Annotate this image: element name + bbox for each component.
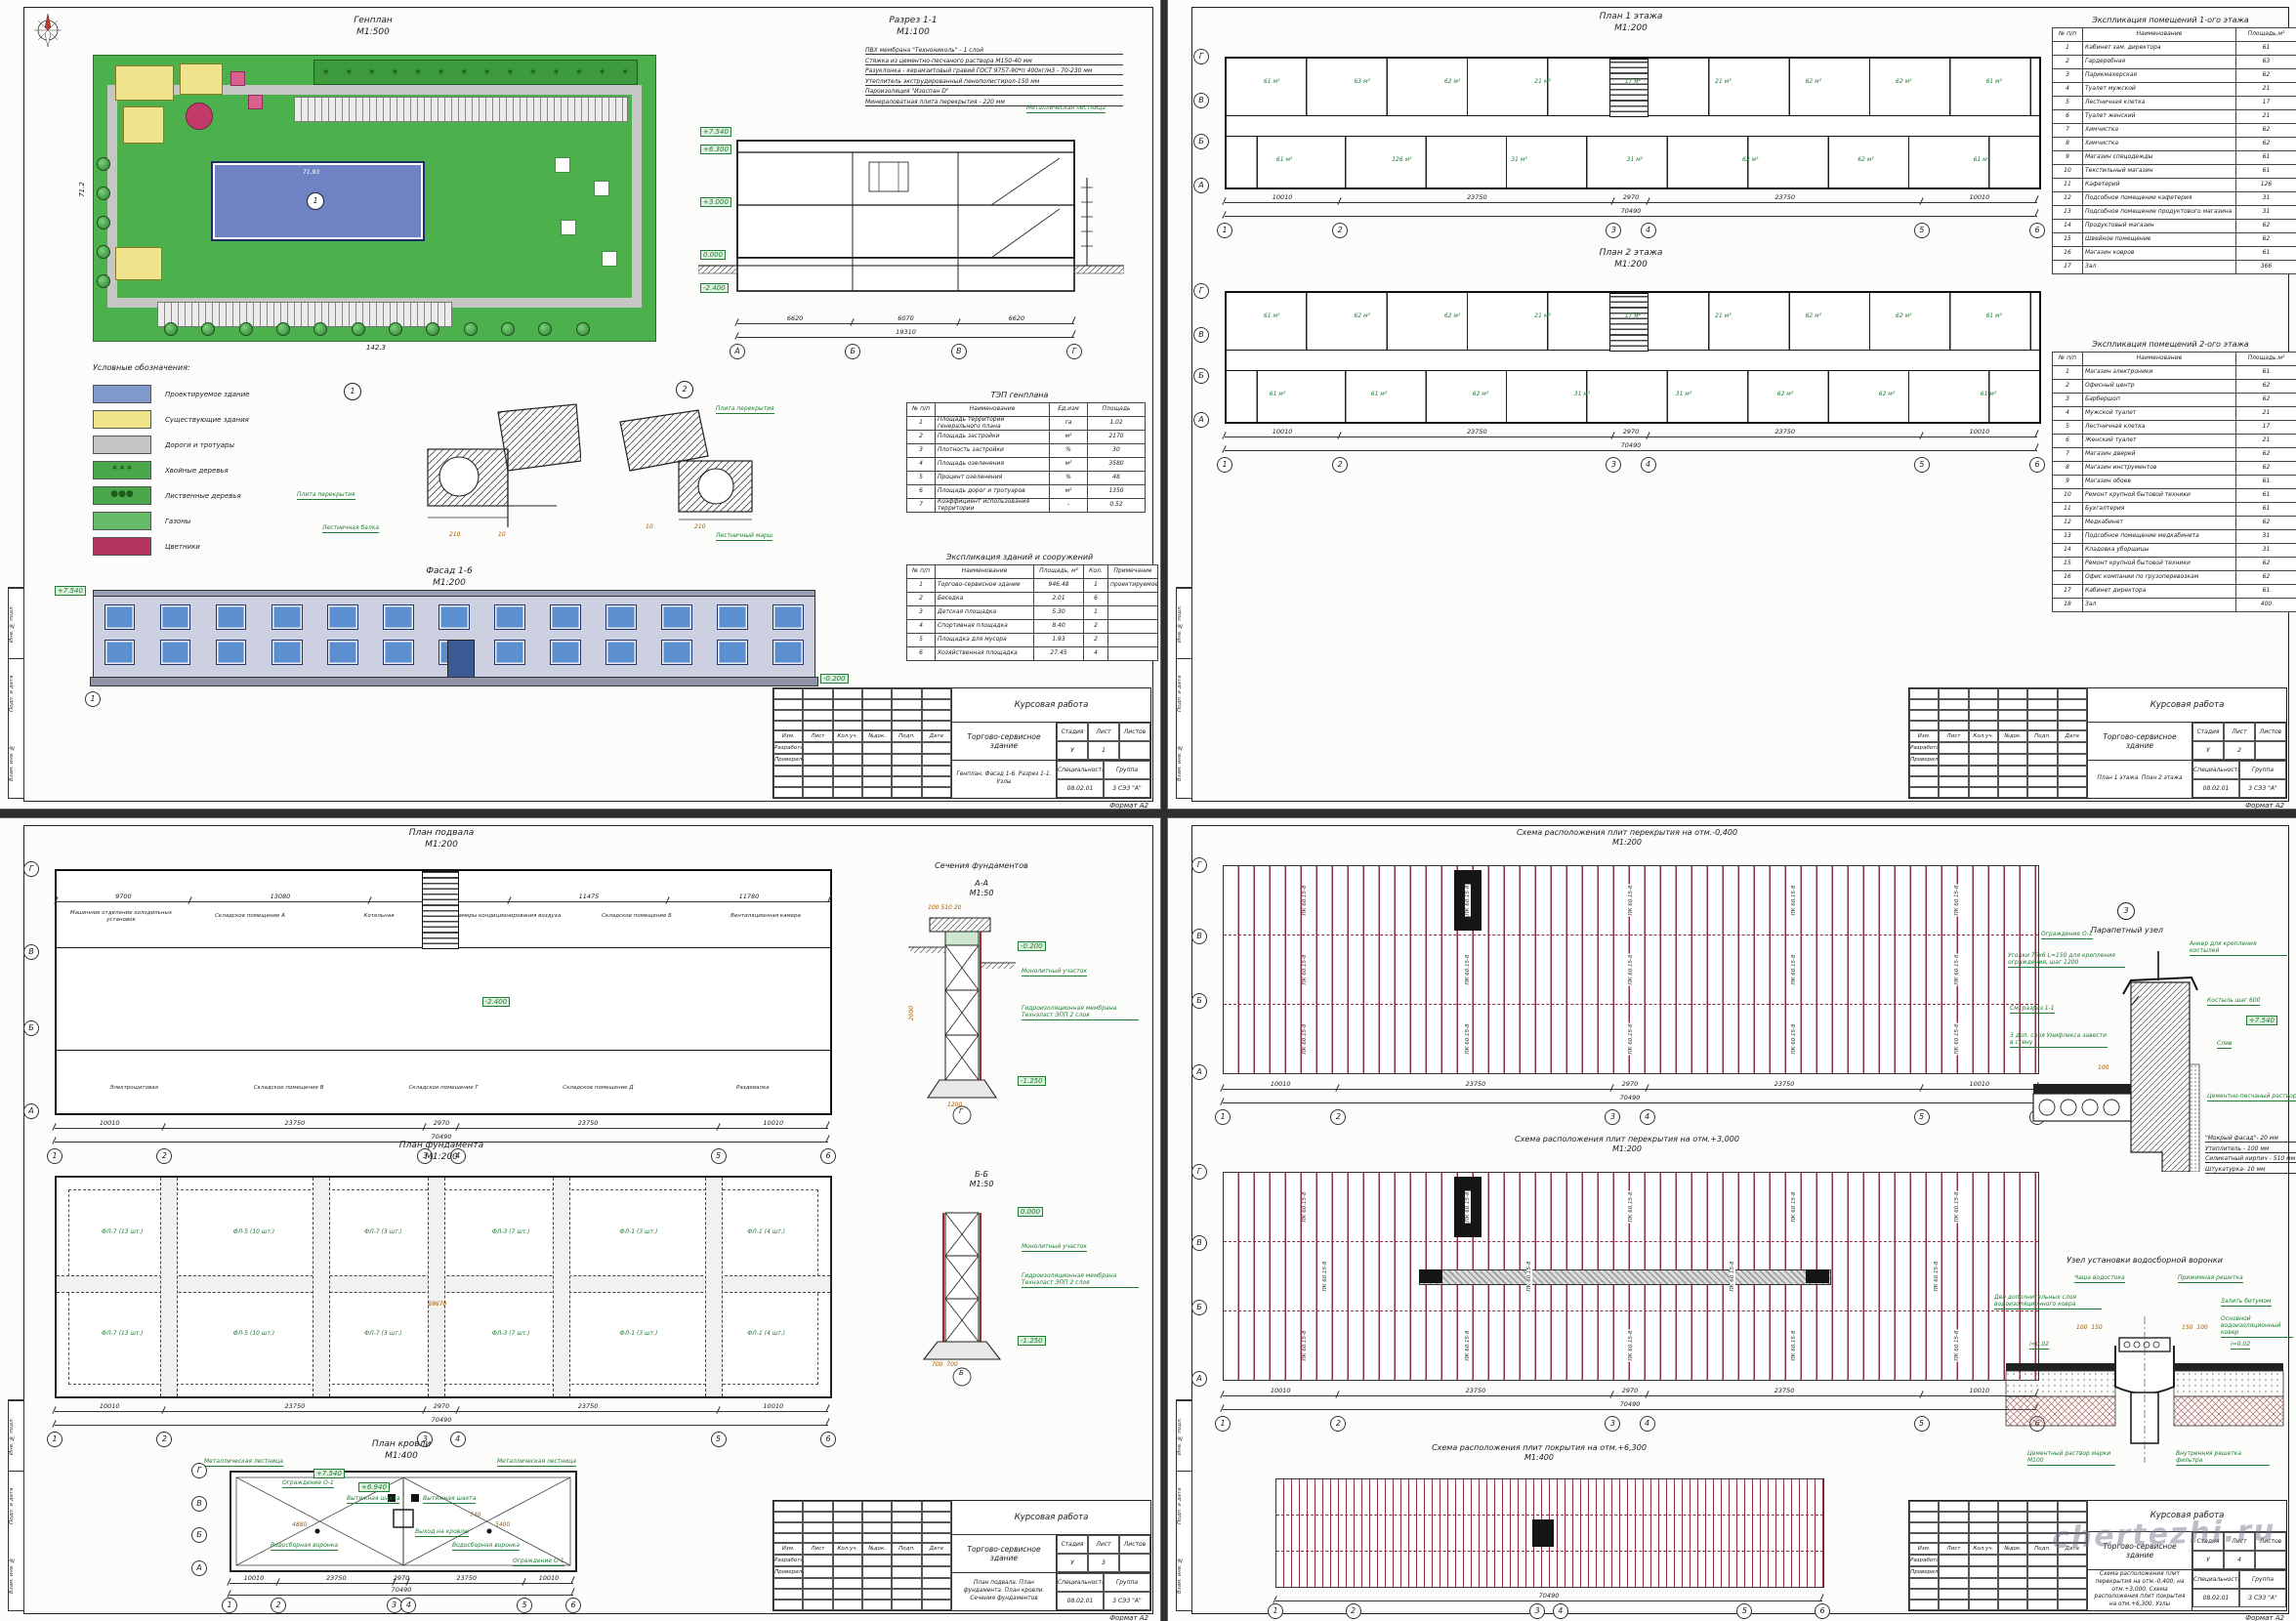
table-cell: Женский туалет (2083, 435, 2236, 448)
playground (230, 71, 245, 86)
table-cell: Хозяйственная площадка (936, 647, 1034, 661)
table-cell: Лестничная клетка (2083, 421, 2236, 435)
dim-value: 6620 (787, 314, 804, 322)
tree-icon: ✶ (621, 67, 629, 78)
axis-bubble: 5 (1914, 1109, 1930, 1125)
scheme3-title: Схема расположения плит покрытия на отм.… (1432, 1443, 1647, 1464)
roof-title: План кровлиМ1:400 (372, 1439, 431, 1462)
dim-segment: 2970 (1612, 1080, 1647, 1090)
table-row: 6Площадь дорог и тротуаровм²1350 (907, 485, 1146, 499)
floor-plan-1: 61 м²63 м²62 м²21 м²17 м²21 м²62 м²62 м²… (1225, 57, 2041, 189)
object-name: Торгово-сервисное здание (2088, 1532, 2192, 1569)
spec-cell: 3 СЭЗ "А" (2239, 1589, 2286, 1607)
axis-bubble: А (23, 1103, 39, 1119)
tree-icon: ✶ (483, 67, 491, 78)
axis-bubble: Б (191, 1527, 207, 1543)
stage-cell: Лист (1088, 1535, 1119, 1554)
tree-icon: ✶ (598, 67, 605, 78)
area-labels-bottom: 61 м²61 м²62 м²31 м²31 м²62 м²62 м²61 м² (1227, 391, 2039, 397)
axis-bubble: 1 (85, 691, 101, 707)
column-header: Площадь,м² (2236, 353, 2296, 366)
plan2-dims: 100102375029702375010010 (1225, 428, 2037, 439)
table-cell: 16 (2053, 247, 2083, 261)
table-cell: Текстильный магазин (2083, 165, 2236, 179)
area-label: ФЛ-1 (4 шт.) (747, 1228, 785, 1235)
room-name-label: Камеры кондиционирования воздуха (443, 913, 572, 920)
tree-icon (97, 187, 110, 200)
facade-drawing (93, 590, 815, 682)
format-label: Формат А2 (1109, 802, 1148, 810)
table-cell: 62 (2236, 517, 2296, 530)
parking-strip (294, 97, 628, 122)
table-cell: 61 (2236, 42, 2296, 56)
table-row: 3Барбершоп62 (2053, 394, 2296, 407)
note-line: "Мокрый фасад"- 20 мм (2205, 1135, 2296, 1143)
area-label: 62 м² (1896, 78, 1911, 85)
table-cell: Плотность застройки (936, 444, 1050, 458)
dim-210: 210 (449, 531, 460, 538)
room-name-label: Складское помещение В (211, 1085, 365, 1092)
area-label: ФЛ-1 (3 шт.) (619, 1330, 657, 1337)
table-row: 6Женский туалет21 (2053, 435, 2296, 448)
side-stamp-cell: Инв. № подл. (1177, 1400, 1191, 1471)
side-stamp-cell: Взам. инв. № (9, 1541, 23, 1610)
table-cell: 6 (2053, 110, 2083, 124)
axis-bubble: А (1191, 1064, 1207, 1080)
spec-grid: СпециальностьГруппа08.02.013 СЭЗ "А" (2192, 761, 2286, 798)
axis-bubble: В (1193, 93, 1209, 108)
plan1-dims: 100102375029702375010010 (1225, 193, 2037, 205)
dims-top: 100 510 20 (928, 904, 961, 911)
legend-item-label: Существующие здания (165, 416, 249, 424)
table-cell: Офисный центр (2083, 380, 2236, 394)
area-label: ФЛ-5 (10 шт.) (232, 1228, 274, 1235)
table-cell: Торгово-сервисное здание (936, 579, 1034, 593)
table-cell: 62 (2236, 138, 2296, 151)
table-cell: 17 (2236, 421, 2296, 435)
legend-item: ✶✶✶Хвойные деревья (93, 461, 317, 479)
table-cell: Химчистка (2083, 138, 2236, 151)
axis-bubble: А (1193, 412, 1209, 428)
table-cell: - (1050, 499, 1088, 513)
fence-label: Ограждение О-1 (513, 1559, 564, 1566)
side-stamp-cell: Подп. и дата (9, 658, 23, 728)
room-name-label: Раздевалка (676, 1085, 830, 1092)
table-cell (1108, 620, 1158, 634)
detail-2-drawing: Плита перекрытия Лестничный марш 210 10 (610, 402, 781, 549)
table-cell: 1.93 (1034, 634, 1084, 647)
table-cell: 4 (907, 620, 936, 634)
table-cell: 5 (2053, 421, 2083, 435)
uniflex-label: 3 доп. слоя Унифлекса завести в стену (2010, 1033, 2108, 1048)
window (216, 640, 246, 665)
legend-swatch-conifer-icon: ✶✶✶ (93, 461, 151, 479)
stage-grid: СтадияЛистЛистовУ4 (2192, 1532, 2286, 1569)
data-table: № п/пНаименованиеЕд.измПлощадь1Площадь т… (906, 402, 1146, 513)
wall-layers-notes: "Мокрый фасад"- 20 ммУтеплитель - 100 мм… (2205, 1135, 2296, 1176)
table-cell: 3580 (1088, 458, 1146, 472)
table-cell: Беседка (936, 593, 1034, 606)
table-cell (1108, 593, 1158, 606)
table-cell: 13 (2053, 206, 2083, 220)
stage-grid: СтадияЛистЛистовУ2 (2192, 723, 2286, 760)
table-cell: 1 (907, 417, 936, 431)
slab-band: ПК8.12-8 ПК 60.15-8ПК 60.15-8ПК 60.15-8П… (1224, 1173, 2038, 1242)
spec-cell: 08.02.01 (1057, 1592, 1104, 1610)
dim-segment: 23750 (164, 1119, 425, 1129)
table-cell: Химчистка (2083, 124, 2236, 138)
table-cell: 21 (2236, 435, 2296, 448)
spec-cell: Специальность (2192, 761, 2239, 779)
sheet-3: Инв. № подл.Подп. и датаВзам. инв. № Пла… (0, 818, 1160, 1621)
detail-2-badge: 2 (676, 381, 693, 398)
scheme1-title: Схема расположения плит перекрытия на от… (1517, 828, 1737, 849)
table-row: 10Ремонт крупной бытовой техники61 (2053, 489, 2296, 503)
plate-label: ПК 60.15-8 (1465, 953, 1471, 985)
funnel-label: Водосборная воронка (452, 1543, 520, 1551)
tree-icon (464, 322, 478, 336)
facade-parapet (94, 591, 814, 597)
table-row: 13Подсобное помещение медкабинета31 (2053, 530, 2296, 544)
facade-window-row (104, 604, 804, 628)
opening (1806, 1269, 1829, 1283)
object-name: Торгово-сервисное здание (952, 723, 1057, 760)
stage-cell (2255, 741, 2286, 760)
table-cell: 2 (907, 593, 936, 606)
parapet-title: Парапетный узел (2091, 926, 2163, 935)
stage-cell: Лист (2224, 1532, 2255, 1551)
table-cell: 62 (2236, 380, 2296, 394)
table-cell: 1 (907, 579, 936, 593)
tree-icon (389, 322, 402, 336)
table-cell: 9 (2053, 476, 2083, 489)
legend-swatch-road-icon (93, 436, 151, 454)
section-b-title: Б-БМ1:50 (970, 1170, 994, 1190)
side-stamp: Инв. № подл.Подп. и датаВзам. инв. № (1176, 1399, 1192, 1611)
window (104, 604, 135, 630)
table-cell: 1350 (1088, 485, 1146, 499)
stage-cell: У (1057, 1554, 1088, 1572)
table-row: 4Площадь озеленениям²3580 (907, 458, 1146, 472)
rooms-explication-1-wrap: Экспликация помещений 1-ого этажа № п/пН… (2052, 16, 2289, 274)
dim-segment: 23750 (1648, 1080, 1922, 1090)
parapet-elev: +7.540 (2246, 1016, 2277, 1025)
axis-bubble: 5 (1736, 1603, 1752, 1619)
plate-label: ПК 60.15-8 (1954, 884, 1960, 916)
genplan-title: ГенпланМ1:500 (354, 16, 392, 38)
axis-bubble: В (23, 944, 39, 960)
gazebo (561, 220, 576, 235)
dim-value: 23750 (285, 1402, 306, 1410)
table-row: 18Зал400 (2053, 599, 2296, 612)
staircase (422, 871, 459, 949)
axis-bubble: А (1193, 178, 1209, 193)
sections-group-title: Сечения фундаментов (935, 861, 1028, 871)
compass-rose-icon (29, 12, 66, 49)
tree-icon (239, 322, 253, 336)
basement-plan: 970013080101351147511780 Машинное отделе… (55, 869, 832, 1115)
note-line: Разуклонка - керамзитовый гравий ГОСТ 97… (865, 67, 1123, 75)
kostyl-label: Костыль шаг 600 (2207, 998, 2260, 1006)
slab-label: Плита перекрытия (716, 406, 774, 414)
existing-building (180, 63, 223, 95)
scheme3-total: 70490 (1275, 1592, 1822, 1603)
table-cell: 1 (1084, 579, 1108, 593)
table-row: 7Магазин дверей62 (2053, 448, 2296, 462)
table-row: 9Магазин спецодежды61 (2053, 151, 2296, 165)
table-cell: 31 (2236, 530, 2296, 544)
window (271, 640, 302, 665)
format-label: Формат А2 (2245, 802, 2284, 810)
scheme3-axes: 123456 (1275, 1603, 1822, 1619)
parapet-detail-badge: 3 (2117, 902, 2135, 920)
axis-bubble: 6 (820, 1148, 836, 1164)
table-row: 7Химчистка62 (2053, 124, 2296, 138)
table-cell: Площадка для мусора (936, 634, 1034, 647)
slab-band: ПК8.12-8 ПК 60.15-8ПК 60.15-8ПК 60.15-8П… (1224, 866, 2038, 935)
axis-bubble: 6 (2029, 223, 2045, 238)
table-cell: Площадь застройки (936, 431, 1050, 444)
basement-vert-axes: ГВБА (23, 869, 39, 1111)
column-header: Наименование (936, 403, 1050, 417)
dim-segment: 23750 (1649, 428, 1922, 437)
legend-swatch-flower-icon (93, 537, 151, 556)
plate-label: ПК 60.15-8 (1934, 1260, 1940, 1292)
window (104, 640, 135, 665)
tree-col (96, 149, 111, 296)
table-cell: 62 (2236, 571, 2296, 585)
axis-bubble: Б (1193, 134, 1209, 149)
table-cell: 5 (907, 634, 936, 647)
table-row: 4Спортивная площадка8.402 (907, 620, 1158, 634)
plate-label: ПК 60.15-8 (1465, 884, 1471, 916)
dim-segment: 23750 (1340, 428, 1613, 437)
scheme2-title: Схема расположения плит перекрытия на от… (1515, 1135, 1739, 1155)
window (661, 604, 691, 630)
dim-value: 10010 (1969, 1080, 1989, 1088)
slab-band (1276, 1516, 1823, 1552)
area-label: 21 м² (1715, 312, 1731, 319)
window (717, 604, 747, 630)
table-cell: 11 (2053, 503, 2083, 517)
elevation-mark: 0.000 (700, 250, 726, 260)
foundation-axes: 123456 (55, 1432, 828, 1447)
dim-segment: 10010 (1922, 193, 2037, 203)
plate-label: ПК 60.15-8 (1302, 953, 1308, 985)
anchor-label: Анкер для крепления костылей (2190, 941, 2287, 956)
table-cell: 2 (1084, 634, 1108, 647)
table-cell: Подсобное помещение кафетерия (2083, 192, 2236, 206)
table-row: 1Площадь территории генерального планага… (907, 417, 1146, 431)
axis-label: Г (959, 1107, 963, 1115)
legend-item-label: Газоны (165, 518, 190, 525)
spec-cell: Специальность (1057, 1573, 1104, 1592)
table-row: 13Подсобное помещение продуктового магаз… (2053, 206, 2296, 220)
area-label: 17 м² (1625, 312, 1641, 319)
table-row: 8Магазин инструментов62 (2053, 462, 2296, 476)
dim-value: 10010 (1969, 1387, 1989, 1394)
scheme2-vert-axes: ГВБА (1191, 1172, 1207, 1379)
section-a-title: А-АМ1:50 (970, 879, 994, 899)
table-cell: Магазин инструментов (2083, 462, 2236, 476)
table-cell (1108, 647, 1158, 661)
table-cell: 1 (1084, 606, 1108, 620)
table-header-row: № п/пНаименованиеПлощадь, м²Кол.Примечан… (907, 565, 1158, 579)
facade-elev-bottom: -0.200 (820, 674, 849, 684)
area-label: 31 м² (1574, 391, 1590, 397)
table-cell: 400 (2236, 599, 2296, 612)
table-row: 5Процент озеленения%48 (907, 472, 1146, 485)
title-block-main: Курсовая работаТоргово-сервисное зданиеС… (2088, 1501, 2286, 1610)
table-cell: м² (1050, 431, 1088, 444)
table-cell: 4 (907, 458, 936, 472)
dim-value: 10010 (763, 1402, 783, 1410)
tree-icon: ✶ (460, 67, 468, 78)
table-cell: Зал (2083, 599, 2236, 612)
stage-cell: Стадия (1057, 723, 1088, 741)
side-stamp-cell: Взам. инв. № (1177, 1541, 1191, 1610)
stage-cell: У (1057, 741, 1088, 760)
tree-icon (97, 157, 110, 171)
axis-label: Б (959, 1369, 964, 1377)
table-row: 16Магазин ковров61 (2053, 247, 2296, 261)
plate-label: ПК 60.15-8 (1954, 1022, 1960, 1055)
elevation-mark: 0.000 (1018, 1207, 1043, 1217)
beam-label: Лестничная балка (322, 525, 379, 533)
table-cell: 0.52 (1088, 499, 1146, 513)
dim-segment: 10010 (1223, 1387, 1338, 1396)
table-row: 5Лестничная клетка17 (2053, 97, 2296, 110)
axis-bubble: 3 (387, 1598, 402, 1613)
plate-label: ПК 60.15-8 (1628, 953, 1634, 985)
table-cell: 4 (2053, 83, 2083, 97)
area-label: ФЛ-5 (10 шт.) (232, 1330, 274, 1337)
legend-item: Существующие здания (93, 410, 317, 429)
spec-cell: Группа (2239, 1570, 2286, 1589)
note-line: Утеплитель экструдированный пенополистир… (865, 78, 1123, 86)
table-cell: 7 (2053, 124, 2083, 138)
dim-segment: 2970 (1613, 193, 1648, 203)
dim-value: 23750 (456, 1574, 477, 1582)
genplan-width-dim: 142.3 (347, 344, 405, 352)
dim-segment: 10010 (230, 1574, 278, 1584)
note-line: Утеплитель - 100 мм (2205, 1145, 2296, 1153)
tree-icon (201, 322, 215, 336)
dim-10: 10 (498, 531, 506, 538)
stage-cell: Листов (2255, 723, 2286, 741)
dim-value: 10010 (100, 1402, 120, 1410)
side-stamp-cell: Подп. и дата (9, 1471, 23, 1541)
axis-bubble: А (730, 344, 745, 359)
spec-cell: 08.02.01 (2192, 1589, 2239, 1607)
membrane-label: Гидроизоляционная мембрана Технэласт ЭПП… (1022, 1273, 1139, 1288)
playground (248, 95, 263, 109)
table-row: 3Детская площадка5.301 (907, 606, 1158, 620)
dim-segment: 6620 (959, 314, 1074, 324)
tree-icon: ✶ (506, 67, 514, 78)
section-1-1-drawing: +7.540 +6.300 +3.000 0.000 -2.400 Металл… (698, 119, 1124, 369)
stage-cell: У (2192, 1551, 2224, 1569)
area-label: ФЛ-7 (3 шт.) (364, 1330, 402, 1337)
dim-value: 10010 (1271, 1080, 1291, 1088)
section-axes: АБВГ (737, 344, 1074, 359)
area-label: ФЛ-7 (13 шт.) (102, 1228, 144, 1235)
axis-bubble: 1 (1268, 1603, 1283, 1619)
roof-slab-scheme-plus-6300 (1275, 1478, 1824, 1588)
dim-segment: 10010 (55, 1402, 164, 1412)
dim-value: 2970 (1623, 193, 1640, 201)
dim-value: 10010 (100, 1119, 120, 1127)
dim-value: 23750 (1774, 1080, 1795, 1088)
tree-icon: ✶ (529, 67, 537, 78)
table-row: 2Площадь застройким²2170 (907, 431, 1146, 444)
building-number-badge: 1 (307, 192, 324, 210)
table-cell: Магазин ковров (2083, 247, 2236, 261)
tep-table-title: ТЭП генплана (906, 391, 1133, 399)
dim-value: 10010 (1970, 428, 1990, 436)
table-cell: Кладовка уборщицы (2083, 544, 2236, 558)
plate-label: ПК 60.15-8 (1791, 953, 1797, 985)
stage-cell: Стадия (2192, 723, 2224, 741)
sliv-label: Слив (2217, 1041, 2232, 1049)
title-block-revision-grid: Изм.ЛистКол.уч.№док.Подп.ДатаРазработалП… (773, 1501, 952, 1610)
stage-cell: Лист (1088, 723, 1119, 741)
title-block-revision-grid: Изм.ЛистКол.уч.№док.Подп.ДатаРазработалП… (1909, 688, 2088, 798)
dim-value: 23750 (578, 1402, 599, 1410)
dim-value: 2970 (1623, 428, 1640, 436)
elevation-mark: -0.200 (1018, 941, 1046, 951)
dim-value: 23750 (285, 1119, 306, 1127)
project-name: Курсовая работа (952, 1501, 1150, 1535)
axis-bubble: 6 (1815, 1603, 1830, 1619)
table-cell: 8.40 (1034, 620, 1084, 634)
dim-value: 23750 (1466, 1080, 1486, 1088)
table-cell: 17 (2053, 585, 2083, 599)
genplan-drawing: ✶✶✶✶✶✶✶✶✶✶✶✶✶✶ 1 71,93 (93, 55, 656, 342)
table-row: 5Площадка для мусора1.932 (907, 634, 1158, 647)
dim-segment: 6620 (737, 314, 853, 324)
stage-cell: 1 (1088, 741, 1119, 760)
table-cell: 62 (2236, 394, 2296, 407)
table-cell: Площадь дорог и тротуаров (936, 485, 1050, 499)
table-cell: Офис компании по грузоперевозкам (2083, 571, 2236, 585)
stage-cell: 4 (2224, 1551, 2255, 1569)
axis-bubble: Г (1193, 283, 1209, 299)
table-row: 6Туалет женский21 (2053, 110, 2296, 124)
table-cell: 62 (2236, 558, 2296, 571)
dim-segment: 10010 (55, 1119, 164, 1129)
table-cell: Зал (2083, 261, 2236, 274)
area-label: 31 м² (1627, 156, 1643, 163)
window (383, 604, 413, 630)
axis-bubble: 3 (1605, 1416, 1620, 1432)
foundation-total: 70490 (55, 1416, 828, 1428)
gazebo (602, 251, 617, 267)
roof-vert-axes: ГВБА (191, 1471, 207, 1568)
table-row: 7Коэффициент использования территории-0.… (907, 499, 1146, 513)
dim-value: 2970 (1622, 1387, 1639, 1394)
dim-value: 23750 (578, 1119, 599, 1127)
plate-label: ПК 60.15-8 (1465, 1329, 1471, 1361)
stage-cell: Листов (1119, 723, 1150, 741)
table-cell: 2 (907, 431, 936, 444)
monolith-label: Монолитный участок (1022, 1244, 1087, 1252)
window (271, 604, 302, 630)
strip-footing (705, 1178, 723, 1396)
axis-bubble: 4 (1640, 1416, 1655, 1432)
plate-label: ПК 60.15-8 (1954, 1329, 1960, 1361)
table-cell: Туалет мужской (2083, 83, 2236, 97)
